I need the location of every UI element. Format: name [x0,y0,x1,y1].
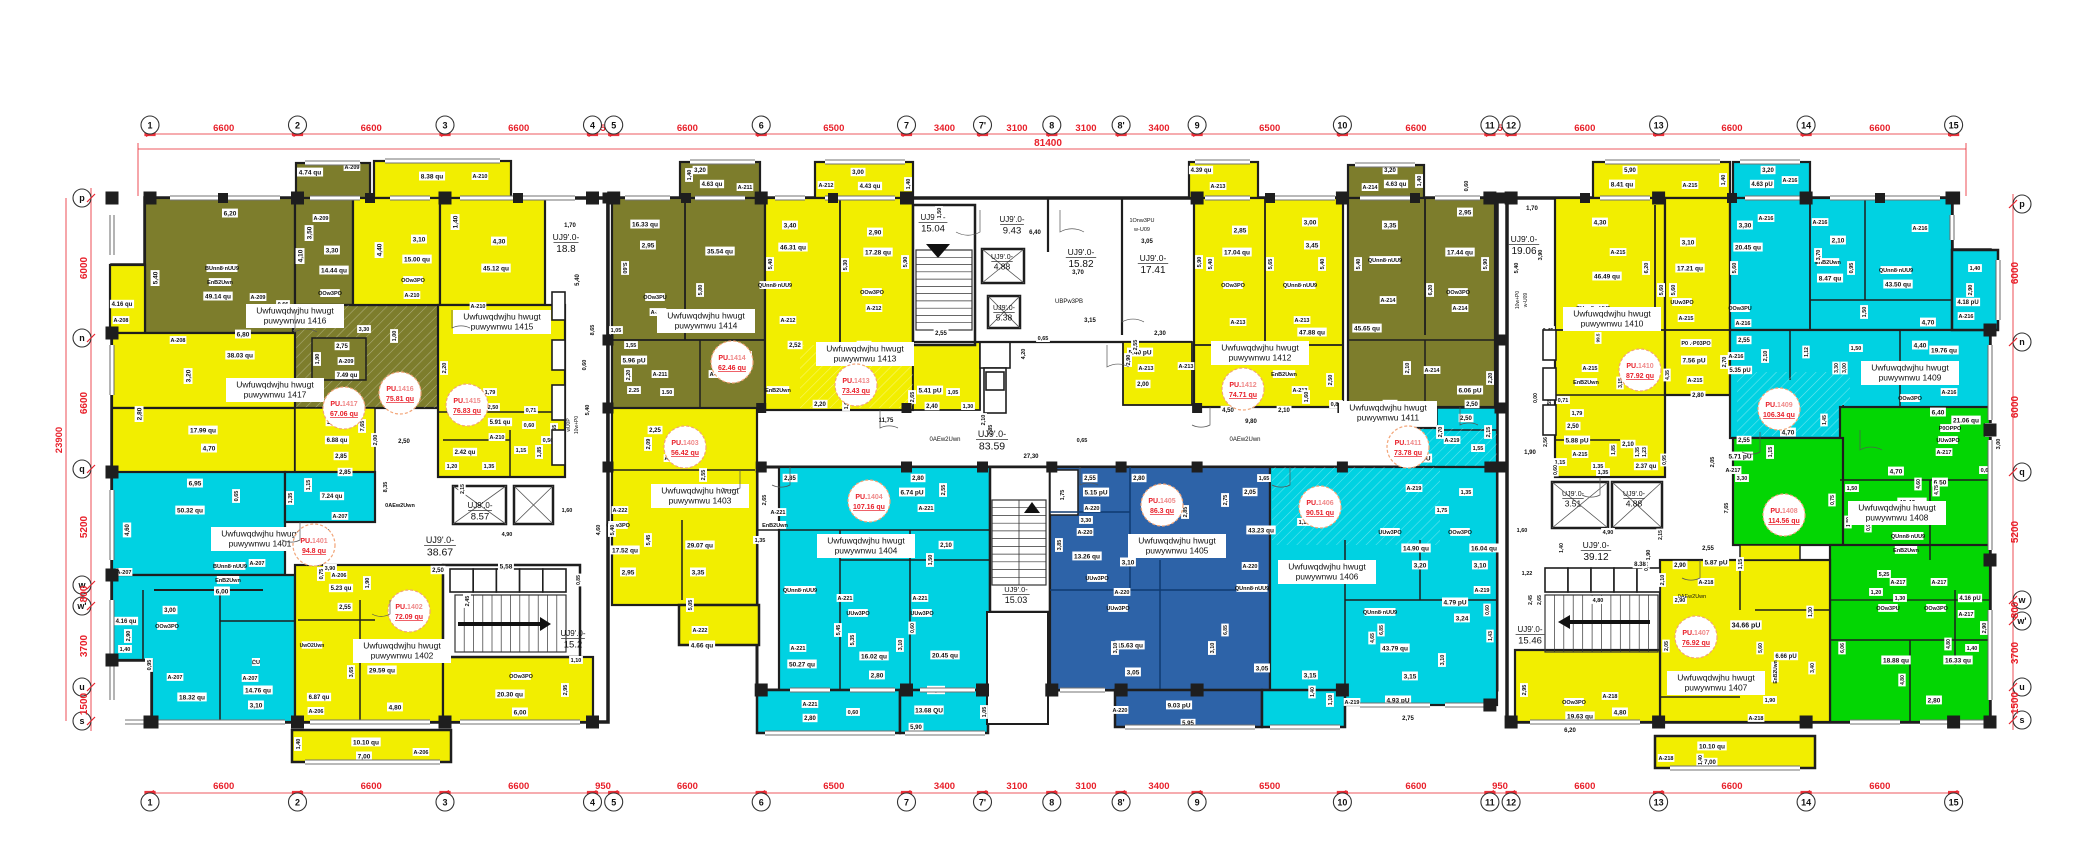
svg-text:PU.1404: PU.1404 [855,494,882,501]
svg-text:5,30: 5,30 [843,260,849,271]
svg-text:3,20: 3,20 [185,369,192,382]
svg-text:4,75: 4,75 [1934,485,1940,495]
svg-text:A-206: A-206 [414,750,429,756]
svg-text:0,65: 0,65 [234,491,240,502]
svg-text:puwywnwu 1405: puwywnwu 1405 [1146,546,1209,556]
svg-text:11: 11 [1485,121,1495,131]
svg-text:5.88 pU: 5.88 pU [1565,437,1588,444]
svg-text:Uwfuwqdwjhu hwugt: Uwfuwqdwjhu hwugt [1677,673,1755,683]
svg-text:QUnn8·nUU9: QUnn8·nUU9 [1363,610,1397,616]
svg-text:A-221: A-221 [803,702,818,708]
svg-text:s: s [79,716,84,726]
svg-text:7,65: 7,65 [1724,503,1730,514]
svg-text:6600: 6600 [213,781,234,792]
svg-text:PU.1401: PU.1401 [300,538,327,545]
svg-text:1,70: 1,70 [564,223,576,229]
svg-text:2,15: 2,15 [1658,530,1664,540]
svg-text:A-215: A-215 [1683,183,1698,189]
svg-text:5,05: 5,05 [688,600,694,611]
svg-text:6,00: 6,00 [216,588,229,595]
svg-text:0,60: 0,60 [582,360,588,371]
svg-text:2,20: 2,20 [626,370,632,381]
svg-text:1,20: 1,20 [447,464,458,470]
svg-text:9: 9 [1195,798,1200,808]
svg-text:1,90: 1,90 [1646,550,1652,561]
svg-text:EnB2Uwn: EnB2Uwn [762,523,788,529]
svg-text:14: 14 [1801,121,1811,131]
svg-text:2,10: 2,10 [1622,442,1634,448]
svg-text:45.12 qu: 45.12 qu [483,265,509,272]
svg-text:14: 14 [1801,798,1811,808]
svg-text:2.37 qu: 2.37 qu [1636,464,1657,470]
svg-text:3,35: 3,35 [1384,222,1397,229]
svg-text:1,40: 1,40 [1970,266,1981,272]
svg-text:67.06 qu: 67.06 qu [330,411,358,418]
svg-text:Uwfuwqdwjhu hwugt: Uwfuwqdwjhu hwugt [1871,363,1949,373]
svg-text:83.59: 83.59 [979,441,1005,453]
svg-text:PU.1405: PU.1405 [1148,498,1175,505]
svg-text:13.68 QU: 13.68 QU [915,707,943,714]
svg-text:14.76 qu: 14.76 qu [245,687,271,694]
svg-text:QUnn8·nUU9: QUnn8·nUU9 [1879,268,1913,274]
svg-text:6600: 6600 [361,781,382,792]
svg-text:5.23 qu: 5.23 qu [331,586,352,592]
svg-text:1,60: 1,60 [1517,528,1528,534]
svg-text:4,70: 4,70 [1922,319,1935,326]
svg-text:2,45: 2,45 [465,596,471,607]
svg-text:2,75: 2,75 [336,344,348,350]
svg-text:2,55: 2,55 [701,470,707,481]
svg-text:0,65: 0,65 [1077,438,1088,444]
svg-text:3100: 3100 [1006,781,1027,792]
svg-text:4.63 qu: 4.63 qu [1386,182,1407,188]
svg-text:2,05: 2,05 [1244,490,1256,496]
svg-text:1,05: 1,05 [982,707,988,718]
svg-text:3,10: 3,10 [1440,655,1446,666]
svg-text:2,10: 2,10 [1832,237,1845,244]
svg-text:A-207: A-207 [243,676,258,682]
svg-text:1,10: 1,10 [571,658,582,664]
svg-text:2,45: 2,45 [1528,595,1534,605]
svg-text:A-216: A-216 [1959,314,1974,320]
svg-text:A-220: A-220 [1078,530,1093,536]
svg-text:99.5: 99.5 [1596,333,1601,342]
svg-text:QUnn8·nUU9: QUnn8·nUU9 [1368,258,1402,264]
svg-text:5.38: 5.38 [996,313,1013,323]
svg-text:7': 7' [979,798,986,808]
svg-text:1,35: 1,35 [1598,470,1609,476]
svg-text:A-213: A-213 [1139,366,1154,372]
svg-text:PU.1416: PU.1416 [386,386,413,393]
svg-text:8.38: 8.38 [1634,562,1646,568]
svg-text:0,60: 0,60 [848,710,859,716]
svg-text:3,70: 3,70 [1072,270,1084,276]
svg-text:5,45: 5,45 [836,625,842,636]
svg-text:OOw3PO: OOw3PO [1898,396,1923,402]
svg-text:6,85: 6,85 [1379,625,1385,635]
svg-text:A-207: A-207 [117,570,132,576]
svg-text:A-214: A-214 [1381,298,1397,304]
svg-text:8,65: 8,65 [590,325,596,336]
svg-text:Uwfuwqdwjhu hwugt: Uwfuwqdwjhu hwugt [826,344,904,354]
svg-text:2,00: 2,00 [1137,382,1149,388]
svg-text:27,30: 27,30 [1023,454,1039,460]
svg-text:50.27 qu: 50.27 qu [789,661,815,668]
svg-text:2,10: 2,10 [981,415,987,426]
svg-text:1,55: 1,55 [626,343,637,349]
svg-text:87.92 qu: 87.92 qu [1626,373,1654,380]
svg-text:OOw3PO: OOw3PO [860,290,885,296]
svg-text:UJ9'.0-: UJ9'.0- [467,501,492,510]
svg-text:107.16 qu: 107.16 qu [853,504,885,511]
svg-text:4.63 qu: 4.63 qu [702,182,723,188]
svg-text:4.43 qu: 4.43 qu [860,184,881,190]
svg-text:1,40: 1,40 [1559,543,1565,553]
svg-text:3,20: 3,20 [1762,168,1774,174]
svg-text:UJ9'.0-: UJ9'.0- [991,254,1014,261]
svg-text:6000: 6000 [79,256,90,279]
svg-text:PU.1408: PU.1408 [1770,508,1797,515]
svg-text:A-217: A-217 [1726,468,1741,474]
svg-text:1,65: 1,65 [1259,476,1270,482]
svg-text:4,70: 4,70 [1782,429,1795,436]
svg-text:950: 950 [595,781,611,792]
svg-text:EnB2Uwn: EnB2Uwn [1773,660,1779,683]
svg-text:86.3 qu: 86.3 qu [1150,508,1174,515]
svg-text:2,95: 2,95 [563,685,569,696]
svg-text:0AEw2Uwn: 0AEw2Uwn [1229,437,1260,443]
svg-text:P0OPPO: P0OPPO [1939,426,1962,432]
svg-text:A-214: A-214 [1425,368,1441,374]
svg-text:1,50: 1,50 [1851,346,1862,352]
svg-text:2,10: 2,10 [1660,575,1666,586]
svg-text:9.03 pU: 9.03 pU [1167,702,1190,709]
svg-text:EnB2Uwn: EnB2Uwn [1573,380,1599,386]
svg-text:3,24: 3,24 [1456,615,1469,622]
svg-text:4,80: 4,80 [389,704,402,711]
svg-text:6600: 6600 [677,781,698,792]
svg-text:6,80: 6,80 [237,331,250,338]
svg-text:PU.1406: PU.1406 [1306,500,1333,507]
svg-text:A-206: A-206 [309,709,324,715]
svg-text:EnB2Uwn: EnB2Uwn [215,578,241,584]
svg-text:3,10: 3,10 [250,702,263,709]
svg-text:0,60: 0,60 [910,623,916,633]
svg-text:n: n [2019,337,2025,347]
svg-text:n: n [79,333,85,343]
svg-text:45.65 qu: 45.65 qu [1354,325,1380,332]
svg-text:2,65: 2,65 [1537,595,1543,605]
svg-text:BUnn8·nUU9: BUnn8·nUU9 [213,564,247,570]
svg-text:6,85: 6,85 [1223,625,1229,635]
svg-text:6.74 pU: 6.74 pU [900,489,923,496]
svg-text:5,40: 5,40 [768,259,774,270]
svg-text:6600: 6600 [361,123,382,134]
svg-text:43.79 qu: 43.79 qu [1382,645,1408,652]
svg-text:1,45: 1,45 [1822,415,1828,425]
svg-text:A-218: A-218 [1659,756,1674,762]
svg-text:wU0P: wU0P [566,418,572,432]
svg-text:6,00: 6,00 [514,709,527,716]
svg-text:6600: 6600 [1869,781,1890,792]
svg-text:A-209: A-209 [314,216,329,222]
svg-text:2,95: 2,95 [622,569,635,576]
svg-text:QUnn8·nUU9: QUnn8·nUU9 [783,588,817,594]
svg-text:2,80: 2,80 [1692,393,1704,399]
svg-text:17.28 qu: 17.28 qu [865,249,891,256]
svg-text:19.76 qu: 19.76 qu [1931,347,1957,354]
svg-text:A-217: A-217 [1932,580,1947,586]
svg-text:A-216: A-216 [1942,390,1957,396]
svg-text:7.56 pU: 7.56 pU [1682,357,1705,364]
svg-text:1,35: 1,35 [288,493,294,504]
svg-text:3100: 3100 [1006,123,1027,134]
svg-text:UUw3PO: UUw3PO [1670,300,1694,306]
svg-text:10w+P0: 10w+P0 [574,416,580,434]
svg-text:76.83 qu: 76.83 qu [453,408,481,415]
svg-text:106.34 qu: 106.34 qu [1763,412,1795,419]
svg-text:1,40: 1,40 [906,179,912,190]
svg-text:3,00: 3,00 [852,170,864,176]
svg-text:A-215: A-215 [1573,452,1588,458]
svg-text:0,85: 0,85 [576,575,582,585]
svg-text:2,90: 2,90 [126,631,132,642]
svg-text:OOw3PO: OOw3PO [1562,700,1587,706]
svg-text:1,23: 1,23 [1642,447,1648,457]
svg-text:2,05: 2,05 [1664,641,1670,651]
svg-text:6: 6 [759,121,764,131]
svg-text:3,10: 3,10 [1474,562,1487,569]
svg-text:5,90: 5,90 [910,725,922,731]
svg-text:2,20: 2,20 [1488,373,1494,384]
svg-text:A-216: A-216 [1783,178,1798,184]
svg-text:3,10: 3,10 [1113,643,1119,654]
svg-text:OOw3PO: OOw3PO [1446,290,1471,296]
svg-text:5,65: 5,65 [1268,259,1274,270]
svg-text:4,60: 4,60 [596,525,602,536]
svg-text:8': 8' [1118,121,1125,131]
svg-text:6500: 6500 [823,781,844,792]
svg-text:2,65: 2,65 [762,495,768,506]
svg-text:10.10 qu: 10.10 qu [353,739,379,746]
svg-text:1: 1 [147,121,152,131]
svg-text:8.57: 8.57 [471,512,490,523]
svg-text:UUw3PO: UUw3PO [1106,606,1130,612]
svg-text:4,60: 4,60 [1916,479,1922,489]
svg-text:2,70: 2,70 [1722,357,1728,368]
svg-text:PU.1409: PU.1409 [1765,402,1792,409]
svg-text:3,65: 3,65 [349,667,355,678]
svg-text:Uwfuwqdwjhu hwugt: Uwfuwqdwjhu hwugt [1573,309,1651,319]
svg-text:puwywnwu 1407: puwywnwu 1407 [1685,683,1748,693]
svg-text:3400: 3400 [934,123,955,134]
svg-text:Uwfuwqdwjhu hwugt: Uwfuwqdwjhu hwugt [661,486,739,496]
svg-text:3400: 3400 [934,781,955,792]
svg-text:UJ9'.0-: UJ9'.0- [1517,625,1542,634]
svg-text:3,00: 3,00 [1304,219,1317,226]
svg-text:19.63 qu: 19.63 qu [1567,713,1593,720]
svg-text:q: q [2019,467,2025,477]
svg-text:A-213: A-213 [1179,364,1194,370]
svg-text:7.24 qu: 7.24 qu [322,494,343,500]
svg-text:1,35: 1,35 [755,538,766,544]
svg-text:3: 3 [442,798,447,808]
svg-text:A-215: A-215 [1688,378,1703,384]
svg-text:4.79 pU: 4.79 pU [1443,599,1466,606]
svg-text:6600: 6600 [1574,781,1595,792]
svg-text:OOw3PO: OOw3PO [509,674,534,680]
svg-text:2,80: 2,80 [1133,476,1145,482]
svg-text:7,00: 7,00 [358,753,371,760]
svg-text:3,00: 3,00 [164,608,176,614]
svg-text:puwywnwu 1404: puwywnwu 1404 [835,546,898,556]
svg-text:p: p [79,193,85,203]
svg-text:2,50: 2,50 [488,405,499,411]
svg-text:5.91 qu: 5.91 qu [490,420,511,426]
svg-text:A-208: A-208 [114,318,129,324]
svg-text:3100: 3100 [1075,123,1096,134]
svg-text:2,40: 2,40 [926,404,938,410]
svg-text:UJ9'.0-: UJ9'.0- [1562,491,1585,498]
svg-text:3: 3 [442,121,447,131]
svg-text:EnB2Uwn: EnB2Uwn [1893,548,1919,554]
svg-text:3,15: 3,15 [1404,673,1417,680]
svg-text:14.44 qu: 14.44 qu [321,267,347,274]
svg-text:4.88: 4.88 [1626,499,1643,509]
svg-text:6.06 pU: 6.06 pU [1458,387,1481,394]
svg-text:46.49 qu: 46.49 qu [1594,273,1620,280]
svg-text:A-222: A-222 [613,508,628,514]
svg-text:3100: 3100 [1075,781,1096,792]
svg-text:PU.1413: PU.1413 [842,378,869,385]
svg-text:A-210: A-210 [473,174,488,180]
svg-text:A-219: A-219 [1407,486,1422,492]
svg-text:A-221: A-221 [791,646,806,652]
svg-text:114.56 qu: 114.56 qu [1768,518,1800,525]
svg-text:EnB2Uwn: EnB2Uwn [765,388,791,394]
svg-text:5,60: 5,60 [1758,643,1764,653]
svg-text:17.21 qu: 17.21 qu [1677,265,1703,272]
svg-text:A-218: A-218 [1699,580,1714,586]
svg-text:46.31 qu: 46.31 qu [780,244,806,251]
svg-text:A-221: A-221 [838,596,853,602]
svg-text:20.45 qu: 20.45 qu [1735,244,1761,251]
svg-text:1,40: 1,40 [1967,646,1978,652]
svg-text:4,40: 4,40 [376,243,383,256]
svg-text:ԸU: ԸU [252,659,260,666]
svg-text:2,09: 2,09 [646,439,652,450]
svg-text:12: 12 [1506,121,1516,131]
svg-text:1,90: 1,90 [365,578,371,589]
svg-text:4,70: 4,70 [203,445,216,452]
svg-text:6600: 6600 [1721,123,1742,134]
svg-text:1,79: 1,79 [485,390,496,396]
svg-text:5,60: 5,60 [1732,263,1738,274]
svg-text:1,79: 1,79 [1572,411,1583,417]
svg-text:A-218: A-218 [1749,716,1764,722]
svg-text:6,20: 6,20 [1428,285,1434,296]
svg-text:OOw3PO: OOw3PO [1924,606,1949,612]
svg-text:73.43 qu: 73.43 qu [842,388,870,395]
svg-text:62.46 qu: 62.46 qu [718,365,746,372]
svg-text:8: 8 [1049,798,1054,808]
svg-text:3,90: 3,90 [1538,250,1544,261]
svg-text:5.15 pU: 5.15 pU [1084,489,1107,496]
svg-text:1,40: 1,40 [1310,687,1316,697]
svg-text:6,40: 6,40 [1029,230,1041,236]
svg-text:A-214: A-214 [1453,306,1469,312]
svg-text:5,40: 5,40 [1356,259,1362,270]
svg-text:A-221: A-221 [913,596,928,602]
svg-text:5,25: 5,25 [1879,572,1890,578]
svg-text:2,80: 2,80 [804,716,816,722]
svg-text:6.88 qu: 6.88 qu [327,438,348,444]
svg-text:3,10: 3,10 [1210,643,1216,654]
svg-text:0,60: 0,60 [1485,605,1491,615]
svg-text:4,80: 4,80 [1946,639,1952,649]
svg-text:w-U09: w-U09 [1133,227,1150,233]
svg-text:A-222: A-222 [693,628,708,634]
svg-text:3,10: 3,10 [413,236,426,243]
svg-text:Uwfuwqdwjhu hwugt: Uwfuwqdwjhu hwugt [1221,343,1299,353]
svg-text:A-213: A-213 [1295,318,1310,324]
svg-text:1,40: 1,40 [1721,175,1727,186]
svg-text:QUnn8·nUU9: QUnn8·nUU9 [758,283,792,289]
svg-text:A-211: A-211 [653,372,668,378]
svg-text:15: 15 [1949,798,1959,808]
svg-text:2,80: 2,80 [871,672,884,679]
svg-text:35.54 qu: 35.54 qu [707,248,733,255]
svg-text:1,50: 1,50 [928,555,934,566]
svg-text:PU.1415: PU.1415 [453,398,480,405]
svg-text:1,05: 1,05 [611,328,622,334]
svg-text:PU.1407: PU.1407 [1682,630,1709,637]
svg-text:2.25: 2.25 [629,388,640,394]
svg-text:7': 7' [979,121,986,131]
svg-text:6500: 6500 [823,123,844,134]
svg-text:18.32 qu: 18.32 qu [179,694,205,701]
svg-text:Uwfuwqdwjhu hwugt: Uwfuwqdwjhu hwugt [463,312,541,322]
svg-text:1,60: 1,60 [1304,392,1310,403]
svg-text:3,05: 3,05 [1141,239,1153,245]
svg-text:OOw3PU: OOw3PU [1728,306,1752,312]
svg-text:2,55: 2,55 [1738,438,1750,444]
svg-text:0,00: 0,00 [1533,393,1539,403]
svg-text:2,75: 2,75 [1223,495,1229,506]
svg-text:15.63 qu: 15.63 qu [1117,642,1143,649]
svg-text:PU.1403: PU.1403 [671,440,698,447]
svg-text:2,30: 2,30 [1154,331,1166,337]
svg-text:A-210: A-210 [471,304,486,310]
svg-text:2,55: 2,55 [339,605,351,611]
svg-text:3,70: 3,70 [1816,250,1822,261]
svg-text:puwywnwu 1402: puwywnwu 1402 [371,651,434,661]
svg-text:3,40: 3,40 [1810,663,1816,673]
svg-text:3,45: 3,45 [1306,242,1319,249]
svg-text:15.03: 15.03 [1005,595,1028,605]
svg-text:UJ9'.0-: UJ9'.0- [426,535,454,545]
svg-text:Uwfuwqdwjhu hwugt: Uwfuwqdwjhu hwugt [827,536,905,546]
svg-text:puwywnwu 1410: puwywnwu 1410 [1581,319,1644,329]
svg-text:39.12: 39.12 [1583,552,1608,563]
svg-text:6500: 6500 [1259,123,1280,134]
svg-text:6600: 6600 [1405,781,1426,792]
svg-text:1,40: 1,40 [1417,176,1423,187]
svg-text:4,30: 4,30 [1594,219,1607,226]
svg-text:0AEw2Uwn: 0AEw2Uwn [1678,594,1706,600]
svg-text:1,20: 1,20 [1871,590,1882,596]
svg-text:6600: 6600 [213,123,234,134]
